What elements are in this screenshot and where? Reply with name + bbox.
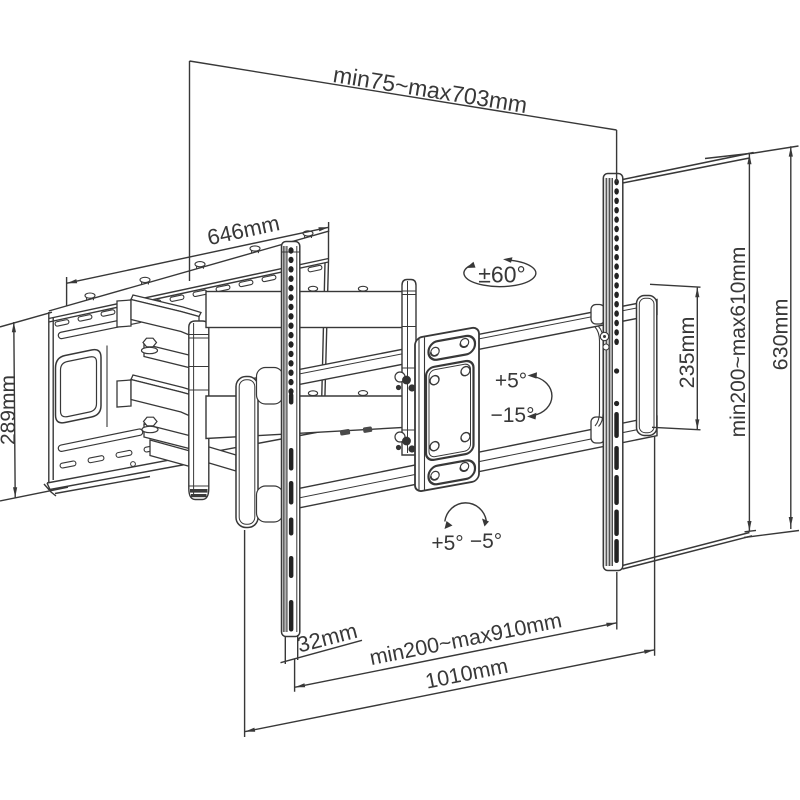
svg-text:+5°: +5° — [431, 532, 463, 555]
svg-text:−15°: −15° — [490, 404, 534, 427]
svg-text:min200~max610mm: min200~max610mm — [727, 247, 750, 438]
svg-text:+5°: +5° — [495, 370, 527, 393]
svg-text:−5°: −5° — [470, 530, 502, 553]
svg-text:235mm: 235mm — [675, 317, 699, 389]
svg-text:±60°: ±60° — [478, 262, 525, 288]
svg-text:289mm: 289mm — [0, 375, 20, 445]
svg-text:630mm: 630mm — [768, 299, 792, 371]
